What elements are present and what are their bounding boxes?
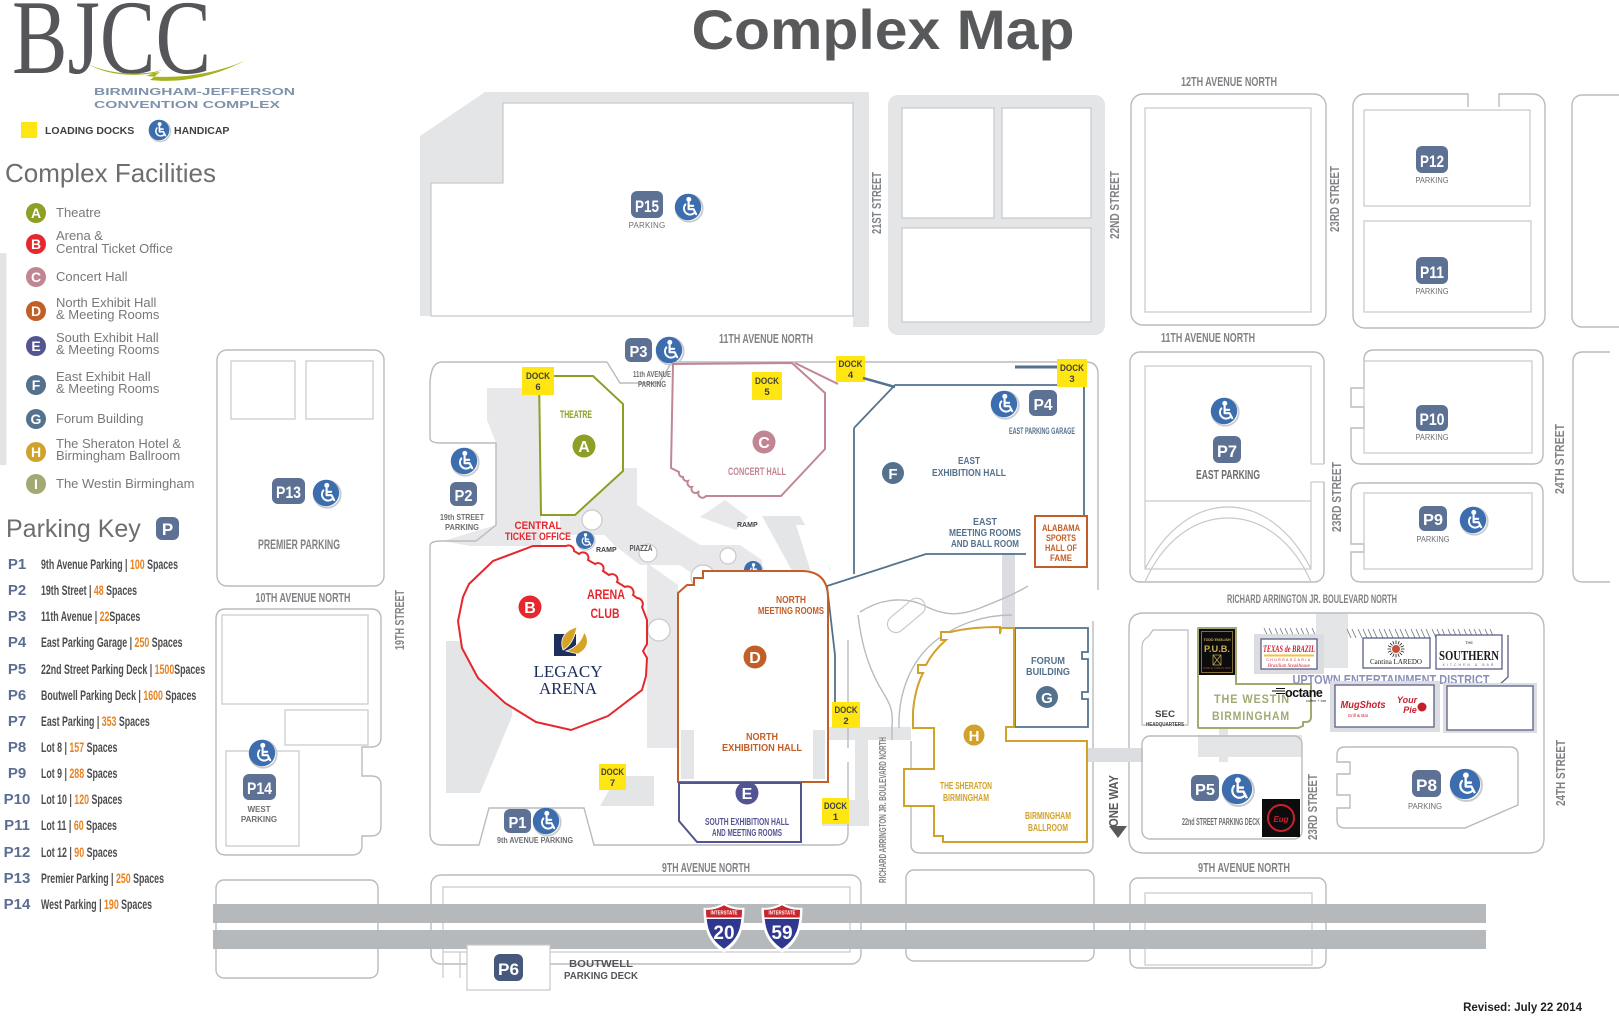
svg-text:coffee + bar: coffee + bar <box>1306 699 1327 703</box>
svg-text:Lot 11 | 60 Spaces: Lot 11 | 60 Spaces <box>41 818 117 834</box>
svg-text:D: D <box>749 650 761 667</box>
svg-text:2: 2 <box>843 716 848 727</box>
svg-text:Pie: Pie <box>1403 705 1417 715</box>
svg-text:DOCK: DOCK <box>755 376 779 387</box>
svg-text:CONVENTION COMPLEX: CONVENTION COMPLEX <box>94 99 280 111</box>
svg-text:3: 3 <box>1069 374 1074 385</box>
svg-text:PARKING: PARKING <box>1416 176 1449 185</box>
svg-text:22nd STREET PARKING DECK: 22nd STREET PARKING DECK <box>1182 817 1260 828</box>
svg-text:DOCK: DOCK <box>835 705 858 716</box>
svg-text:19th STREET: 19th STREET <box>440 512 485 522</box>
svg-text:PARKING: PARKING <box>241 815 277 824</box>
svg-text:AND BALL ROOM: AND BALL ROOM <box>951 538 1019 550</box>
svg-text:P13: P13 <box>4 870 31 887</box>
svg-text:BJCC: BJCC <box>12 0 211 96</box>
svg-text:59: 59 <box>771 923 792 944</box>
svg-text:A: A <box>31 205 41 221</box>
svg-text:D: D <box>31 303 41 319</box>
svg-text:& Meeting Rooms: & Meeting Rooms <box>56 342 160 357</box>
svg-text:Revised: July 22 2014: Revised: July 22 2014 <box>1463 1002 1583 1014</box>
svg-text:WEST: WEST <box>247 805 270 814</box>
svg-text:AND MEETING ROOMS: AND MEETING ROOMS <box>712 827 782 839</box>
svg-text:P1: P1 <box>509 815 527 832</box>
svg-text:24TH STREET: 24TH STREET <box>1553 740 1568 806</box>
svg-text:9TH AVENUE NORTH: 9TH AVENUE NORTH <box>1198 860 1290 875</box>
svg-text:RICHARD ARRINGTON JR. BOULEVAR: RICHARD ARRINGTON JR. BOULEVARD NORTH <box>1227 592 1397 606</box>
svg-text:Lot 9 | 288 Spaces: Lot 9 | 288 Spaces <box>41 766 118 782</box>
svg-text:22nd Street Parking Deck | 150: 22nd Street Parking Deck | 1500Spaces <box>41 662 205 678</box>
svg-text:10TH AVENUE NORTH: 10TH AVENUE NORTH <box>256 590 351 605</box>
svg-text:H: H <box>31 444 41 460</box>
svg-text:C: C <box>31 269 41 285</box>
svg-text:BALLROOM: BALLROOM <box>1028 822 1068 834</box>
svg-text:P14: P14 <box>247 779 272 798</box>
svg-text:P10: P10 <box>1420 410 1445 429</box>
svg-text:The Westin Birmingham: The Westin Birmingham <box>56 476 194 491</box>
svg-text:PARKING: PARKING <box>629 221 666 230</box>
svg-text:G: G <box>31 411 42 427</box>
svg-text:PIAZZA: PIAZZA <box>630 543 653 553</box>
svg-text:P4: P4 <box>1034 397 1053 414</box>
svg-text:SOUTHERN: SOUTHERN <box>1439 649 1499 664</box>
svg-text:20: 20 <box>713 923 734 944</box>
svg-text:P3: P3 <box>8 608 26 625</box>
svg-text:Parking Key: Parking Key <box>6 515 141 543</box>
svg-text:9TH AVENUE NORTH: 9TH AVENUE NORTH <box>662 860 750 875</box>
svg-text:DOCK: DOCK <box>839 359 863 370</box>
svg-text:C: C <box>758 435 770 452</box>
svg-text:PARKING: PARKING <box>638 379 666 389</box>
svg-text:Central Ticket Office: Central Ticket Office <box>56 241 173 256</box>
svg-text:BIRMINGHAM: BIRMINGHAM <box>1025 810 1071 822</box>
svg-text:EXHIBITION HALL: EXHIBITION HALL <box>722 742 803 754</box>
svg-text:Lot 8 | 157 Spaces: Lot 8 | 157 Spaces <box>41 740 118 756</box>
svg-text:11th AVENUE: 11th AVENUE <box>633 369 671 379</box>
svg-text:Lot 12 | 90 Spaces: Lot 12 | 90 Spaces <box>41 845 118 861</box>
svg-text:P11: P11 <box>1420 263 1444 282</box>
svg-text:SEC: SEC <box>1155 709 1176 719</box>
svg-text:P14: P14 <box>4 896 31 913</box>
svg-text:THEATRE: THEATRE <box>560 409 592 421</box>
svg-text:PREMIER PARKING: PREMIER PARKING <box>258 536 340 552</box>
svg-text:PARKING: PARKING <box>445 522 479 532</box>
svg-text:Premier Parking | 250 Spaces: Premier Parking | 250 Spaces <box>41 871 164 887</box>
svg-text:ALABAMA: ALABAMA <box>1042 523 1080 533</box>
svg-text:23RD STREET: 23RD STREET <box>1327 166 1342 232</box>
svg-text:RAMP: RAMP <box>737 522 758 529</box>
svg-text:BIRMINGHAM-JEFFERSON: BIRMINGHAM-JEFFERSON <box>94 86 295 98</box>
svg-text:19th Street | 48 Spaces: 19th Street | 48 Spaces <box>41 583 137 599</box>
svg-text:P11: P11 <box>4 817 30 834</box>
svg-text:H: H <box>969 728 980 745</box>
svg-text:P3: P3 <box>630 344 648 361</box>
svg-text:P15: P15 <box>635 197 659 216</box>
svg-text:P2: P2 <box>455 488 473 505</box>
svg-text:Complex Map: Complex Map <box>692 0 1075 61</box>
svg-text:TEXAS de BRAZIL: TEXAS de BRAZIL <box>1263 644 1315 654</box>
svg-text:CONCERT HALL: CONCERT HALL <box>728 466 786 478</box>
svg-text:EAST PARKING: EAST PARKING <box>1196 467 1260 482</box>
svg-text:TODD ENGLISH: TODD ENGLISH <box>1203 638 1230 642</box>
svg-text:P7: P7 <box>1217 442 1237 461</box>
svg-text:24TH STREET: 24TH STREET <box>1552 424 1567 494</box>
svg-text:B: B <box>524 600 536 617</box>
svg-text:TICKET OFFICE: TICKET OFFICE <box>505 531 571 543</box>
svg-text:P9: P9 <box>1423 512 1443 529</box>
svg-text:ARENA: ARENA <box>539 679 598 698</box>
svg-text:EXHIBITION HALL: EXHIBITION HALL <box>932 467 1006 479</box>
svg-text:East Parking | 353 Spaces: East Parking | 353 Spaces <box>41 714 150 730</box>
svg-text:DOCK: DOCK <box>601 767 624 778</box>
svg-text:Forum Building: Forum Building <box>56 411 143 426</box>
svg-text:FAME: FAME <box>1050 553 1072 563</box>
svg-text:THE WESTIN: THE WESTIN <box>1214 692 1290 706</box>
svg-text:MEETING ROOMS: MEETING ROOMS <box>758 605 824 617</box>
svg-text:BIRMINGHAM: BIRMINGHAM <box>943 792 989 804</box>
svg-text:P5: P5 <box>8 661 26 678</box>
svg-text:RAMP: RAMP <box>596 547 617 554</box>
svg-text:East Parking Garage | 250 Spa: East Parking Garage | 250 Spaces <box>41 635 183 651</box>
svg-text:PARKING: PARKING <box>1416 287 1449 296</box>
svg-text:P1: P1 <box>8 556 26 573</box>
svg-text:Theatre: Theatre <box>56 205 101 220</box>
svg-text:ARENA: ARENA <box>587 587 625 602</box>
svg-text:1: 1 <box>833 812 839 823</box>
svg-text:THE SHERATON: THE SHERATON <box>940 780 992 792</box>
svg-text:12TH AVENUE NORTH: 12TH AVENUE NORTH <box>1181 74 1277 89</box>
svg-text:SPORTS: SPORTS <box>1046 533 1076 543</box>
svg-text:11TH AVENUE NORTH: 11TH AVENUE NORTH <box>719 331 813 346</box>
svg-text:PARKING DECK: PARKING DECK <box>564 970 638 982</box>
svg-text:P4: P4 <box>8 634 27 651</box>
svg-text:& Meeting Rooms: & Meeting Rooms <box>56 307 160 322</box>
svg-text:DOCK: DOCK <box>526 371 550 382</box>
svg-text:HEADQUARTERS: HEADQUARTERS <box>1146 722 1184 728</box>
svg-text:RICHARD ARRINGTON JR. BOULEVAR: RICHARD ARRINGTON JR. BOULEVARD NORTH <box>877 737 889 883</box>
svg-text:HALL OF: HALL OF <box>1045 543 1077 553</box>
svg-text:P: P <box>162 520 173 539</box>
svg-text:G: G <box>1041 690 1053 707</box>
svg-text:BOUTWELL: BOUTWELL <box>569 958 634 970</box>
svg-text:5: 5 <box>764 387 770 398</box>
svg-text:6: 6 <box>535 382 540 393</box>
svg-text:Lot 10 | 120 Spaces: Lot 10 | 120 Spaces <box>41 792 123 808</box>
svg-text:Cantina LAREDO: Cantina LAREDO <box>1370 658 1422 666</box>
svg-text:THE: THE <box>1465 640 1473 645</box>
svg-text:P5: P5 <box>1195 782 1215 799</box>
svg-text:21ST STREET: 21ST STREET <box>869 172 884 234</box>
svg-text:P12: P12 <box>4 844 31 861</box>
svg-text:Complex Facilities: Complex Facilities <box>5 158 216 188</box>
svg-text:9th Avenue Parking | 100 Spac: 9th Avenue Parking | 100 Spaces <box>41 557 178 573</box>
svg-text:19TH STREET: 19TH STREET <box>392 590 407 650</box>
svg-text:HANDICAP: HANDICAP <box>174 125 229 137</box>
svg-text:Your: Your <box>1397 695 1418 705</box>
svg-text:EAST PARKING GARAGE: EAST PARKING GARAGE <box>1009 426 1075 437</box>
svg-text:9th AVENUE PARKING: 9th AVENUE PARKING <box>497 836 573 845</box>
svg-text:F: F <box>888 466 897 483</box>
svg-text:PARKING: PARKING <box>1417 535 1450 544</box>
svg-text:P10: P10 <box>4 791 31 808</box>
svg-text:E: E <box>31 338 40 354</box>
svg-text:E: E <box>742 786 753 803</box>
svg-text:P2: P2 <box>8 582 26 599</box>
svg-text:DOCK: DOCK <box>824 801 847 812</box>
svg-text:Boutwell Parking Deck | 1600: Boutwell Parking Deck | 1600 Spaces <box>41 688 197 704</box>
svg-text:A: A <box>578 439 590 456</box>
svg-text:LOADING DOCKS: LOADING DOCKS <box>45 125 134 137</box>
svg-text:Brazilian Steakhouse: Brazilian Steakhouse <box>1268 664 1311 669</box>
svg-text:11th Avenue | 22Spaces: 11th Avenue | 22Spaces <box>41 609 141 625</box>
svg-text:7: 7 <box>610 778 615 789</box>
svg-text:11TH AVENUE NORTH: 11TH AVENUE NORTH <box>1161 330 1255 345</box>
svg-text:P.U.B.: P.U.B. <box>1204 644 1230 655</box>
svg-text:22ND STREET: 22ND STREET <box>1107 171 1122 239</box>
svg-text:P8: P8 <box>1416 776 1437 795</box>
svg-text:DOCK: DOCK <box>1060 363 1084 374</box>
svg-text:PARKING: PARKING <box>1416 433 1449 442</box>
svg-text:P7: P7 <box>8 713 26 730</box>
svg-text:Grill & Bar: Grill & Bar <box>1348 713 1369 718</box>
svg-text:B: B <box>31 236 41 252</box>
svg-text:P8: P8 <box>8 739 26 756</box>
svg-text:PARKING: PARKING <box>1408 801 1442 811</box>
svg-text:CLUB: CLUB <box>591 606 620 621</box>
svg-text:PUBLIC URBAN BAR: PUBLIC URBAN BAR <box>1203 666 1230 670</box>
svg-text:West Parking | 190 Spaces: West Parking | 190 Spaces <box>41 897 152 913</box>
svg-text:F: F <box>32 377 41 393</box>
svg-text:P9: P9 <box>8 765 26 782</box>
svg-text:CHURRASCARIA: CHURRASCARIA <box>1266 658 1311 662</box>
svg-text:23RD STREET: 23RD STREET <box>1305 774 1320 840</box>
svg-text:23RD STREET: 23RD STREET <box>1329 462 1344 532</box>
svg-text:BIRMINGHAM: BIRMINGHAM <box>1212 709 1290 723</box>
svg-text:P13: P13 <box>276 483 301 502</box>
svg-text:Birmingham Ballroom: Birmingham Ballroom <box>56 448 180 463</box>
svg-text:I: I <box>34 476 38 492</box>
svg-text:P6: P6 <box>498 960 519 979</box>
svg-text:P6: P6 <box>8 687 26 704</box>
svg-text:EAST: EAST <box>958 455 980 467</box>
svg-text:Concert Hall: Concert Hall <box>56 269 128 284</box>
svg-text:4: 4 <box>848 370 854 381</box>
svg-text:MugShots: MugShots <box>1341 699 1386 711</box>
svg-text:P12: P12 <box>1420 152 1444 171</box>
svg-text:octane: octane <box>1285 686 1323 700</box>
svg-text:& Meeting Rooms: & Meeting Rooms <box>56 381 160 396</box>
svg-text:Eug: Eug <box>1273 815 1288 824</box>
svg-text:ONE WAY: ONE WAY <box>1106 775 1121 827</box>
svg-text:KITCHEN & BAR: KITCHEN & BAR <box>1443 663 1496 667</box>
svg-text:BUILDING: BUILDING <box>1026 666 1070 678</box>
